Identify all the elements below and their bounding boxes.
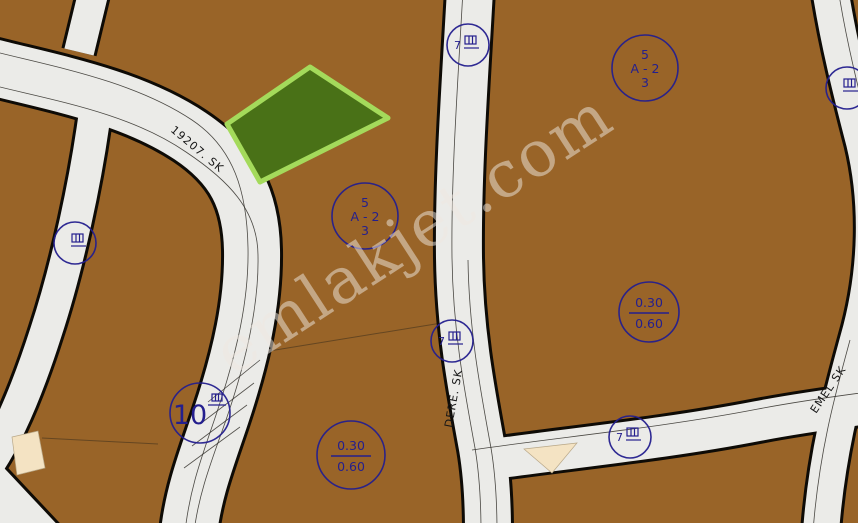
zone-line: 5 [641,47,649,62]
marker-number: 7 [438,335,445,348]
ratio-denominator: 0.60 [635,316,663,331]
ratio-denominator: 0.60 [337,459,365,474]
road-top-branch [79,0,94,52]
zone-line: 5 [361,195,369,210]
marker-number: 7 [454,39,461,52]
marker-number: 7 [616,431,623,444]
zone-line: 3 [641,75,649,90]
ratio-numerator: 0.30 [337,438,365,453]
cadastral-map-viewport[interactable]: 5 A - 2 3 5 A - 2 3 0.30 0.60 0.30 0.60 … [0,0,858,523]
parcel-number: 10 [173,400,207,431]
cadastral-map[interactable]: 5 A - 2 3 5 A - 2 3 0.30 0.60 0.30 0.60 … [0,0,858,523]
zone-line: A - 2 [631,61,660,76]
ratio-numerator: 0.30 [635,295,663,310]
